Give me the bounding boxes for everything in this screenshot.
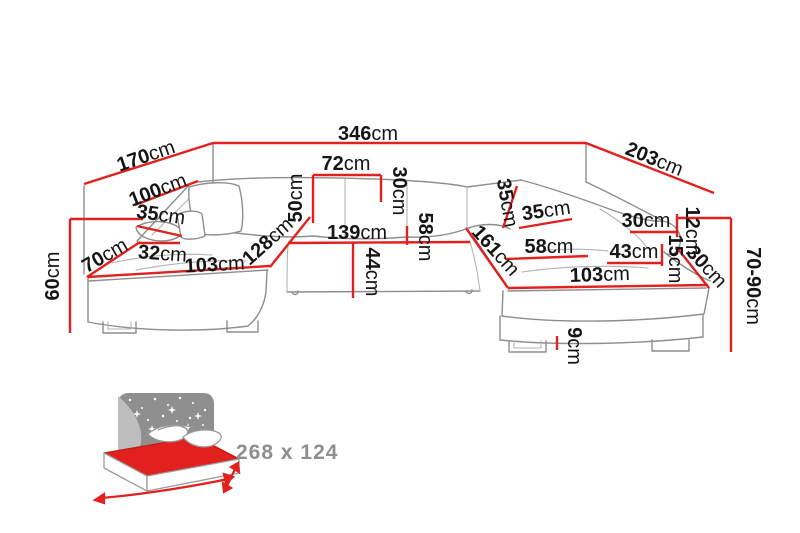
dim-total-width: 346cm xyxy=(338,123,398,145)
dim-middle-front-depth: 44cm xyxy=(361,248,383,297)
dim-left-chaise-length: 103cm xyxy=(184,252,245,277)
dim-middle-seat-depth: 58cm xyxy=(414,213,436,262)
dim-left-seat-offset: 32cm xyxy=(137,241,187,266)
dim-middle-seat-width: 139cm xyxy=(327,222,387,244)
dim-right-seat-front: 43cm xyxy=(610,241,659,263)
dim-seat-height-range: 70-90cm xyxy=(742,247,764,325)
dim-back-cushion-width: 72cm xyxy=(322,153,371,175)
bed-size-label: 268 x 124 xyxy=(236,441,338,464)
sofa-bed-function-icon: 268 x 124 xyxy=(95,393,338,503)
dim-back-cushion-height: 30cm xyxy=(388,167,410,216)
dim-right-backrest-height: 35cm xyxy=(492,177,522,229)
dim-right-armrest-top: 30cm xyxy=(622,210,671,232)
dim-right-seat-depth: 58cm xyxy=(525,236,574,258)
dim-leg-height: 9cm xyxy=(563,327,585,365)
dim-left-front-width: 70cm xyxy=(78,234,131,278)
dim-left-armrest-pad: 35cm xyxy=(135,201,187,230)
sofa-dimension-diagram: 346cm 170cm 203cm 100cm 35cm 70cm 32cm 1… xyxy=(0,0,800,533)
dim-left-height: 60cm xyxy=(42,252,64,301)
diagram-canvas: 346cm 170cm 203cm 100cm 35cm 70cm 32cm 1… xyxy=(0,0,800,533)
dim-right-back-width: 203cm xyxy=(622,138,686,181)
dim-right-chaise-length: 103cm xyxy=(569,263,630,287)
dim-right-armrest-front: 15cm xyxy=(664,235,686,284)
dim-left-back-width: 170cm xyxy=(114,136,178,176)
dim-backrest-seat-height: 50cm xyxy=(285,174,307,223)
dim-left-chaise-diagonal: 128cm xyxy=(238,213,297,270)
